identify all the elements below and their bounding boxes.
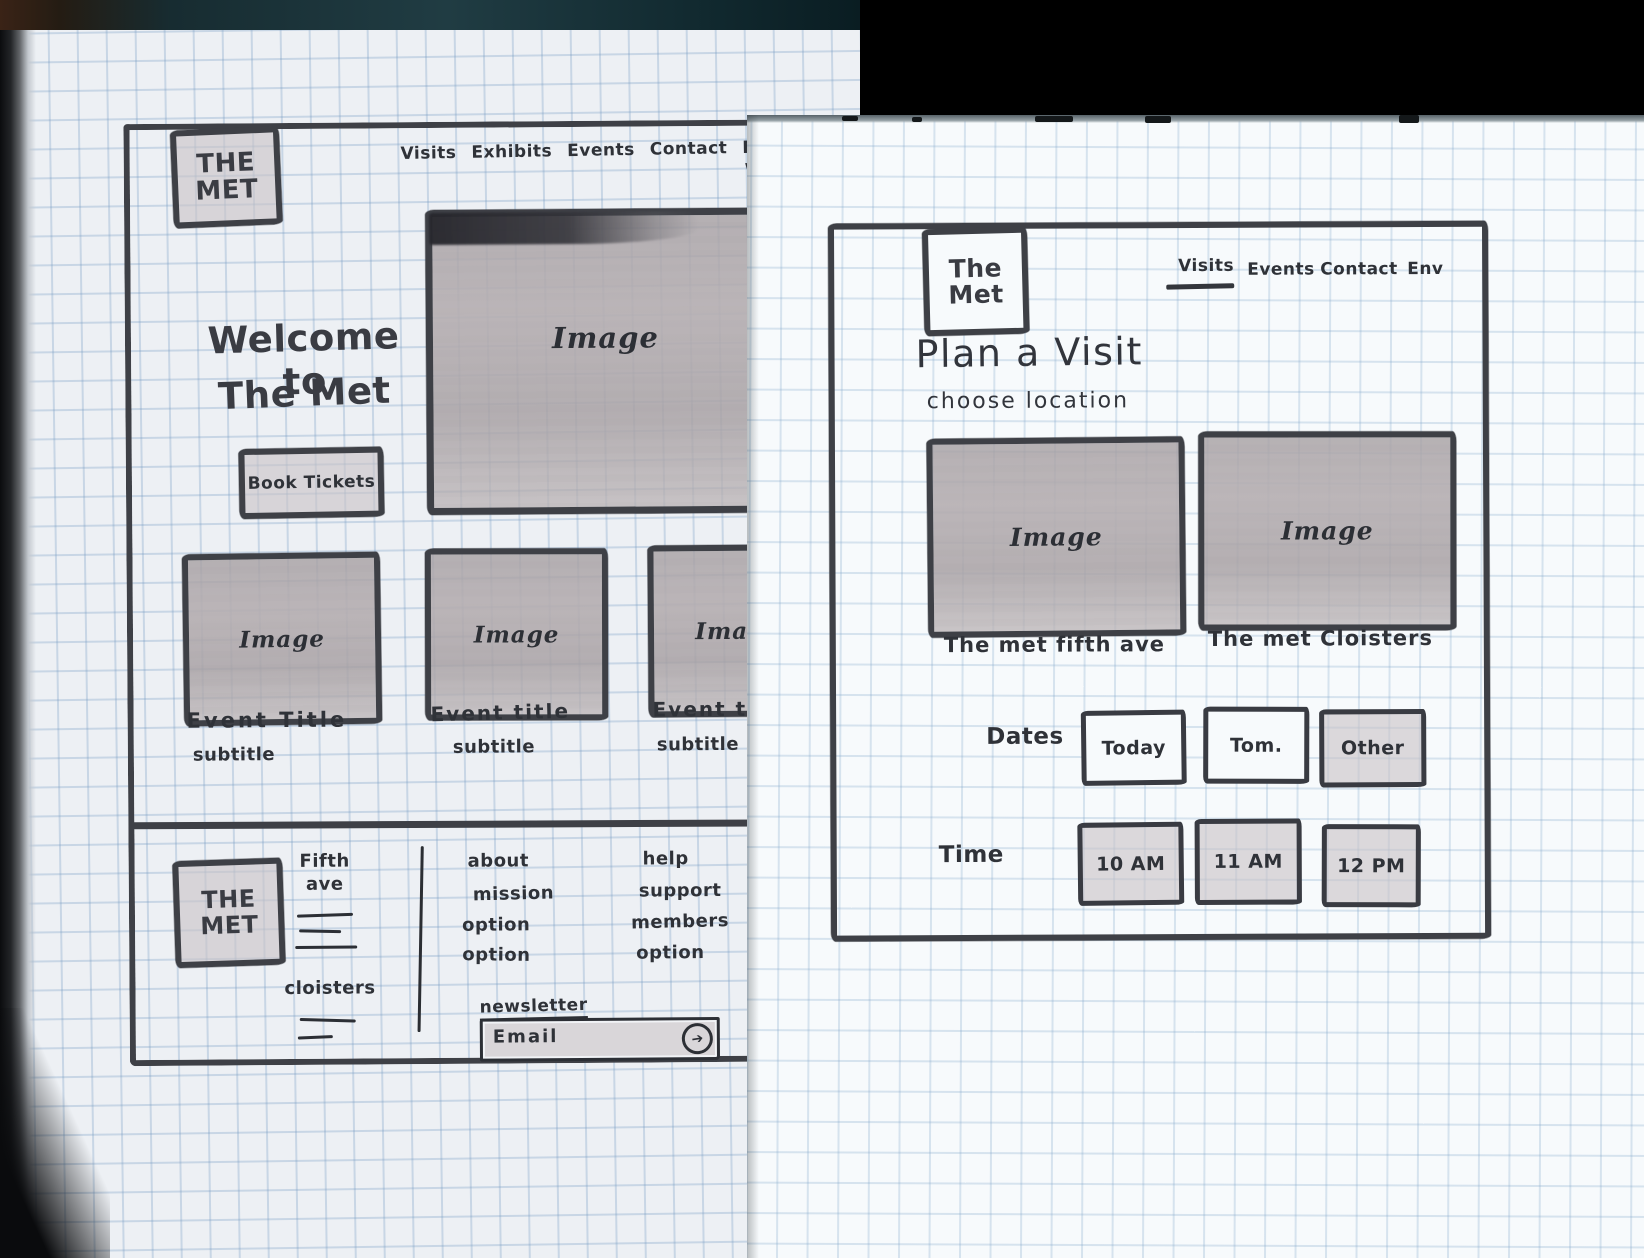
met-logo-box: The Met — [922, 227, 1030, 337]
met-logo-text: THE MET — [177, 149, 276, 206]
location-image-label: Image — [1281, 516, 1374, 545]
hero-image-label: Image — [433, 319, 778, 355]
newsletter-label: newsletter — [479, 995, 588, 1021]
nav-item-contact: Contact — [1320, 259, 1398, 279]
cut-letter-mark — [912, 117, 922, 122]
newsletter-email-input: Email ➔ — [480, 1017, 720, 1062]
date-option-today: Today — [1081, 710, 1187, 786]
home-nav: Visits Exhibits Events Contact En ∨ — [400, 138, 741, 184]
plan-visit-wireframe-sketch: The Met Visits Events Contact Env Plan a… — [747, 115, 1644, 1258]
notebook-corner-shadow — [0, 1008, 110, 1258]
time-label: Time — [939, 842, 1004, 868]
nav-item-events: Events — [567, 140, 635, 181]
book-tickets-label: Book Tickets — [247, 472, 375, 494]
location-caption-fifth-ave: The met fifth ave — [944, 632, 1165, 657]
desk-surface — [0, 0, 860, 30]
footer-met-logo-text: THE MET — [179, 886, 279, 940]
footer-link-members: members — [631, 910, 729, 933]
photo-black-background — [860, 0, 1644, 115]
event-card-title-1: Event Title — [187, 708, 348, 733]
footer-link-about: about — [468, 850, 529, 871]
left-notebook-page: THE MET Visits Exhibits Events Contact E… — [0, 0, 860, 1258]
cut-letter-mark — [1035, 116, 1073, 122]
ink-smudge — [429, 211, 698, 245]
event-card-subtitle-1: subtitle — [193, 744, 275, 766]
event-card-title-2: Event title — [430, 699, 570, 726]
footer-link-mission: mission — [473, 882, 555, 905]
event-card-image-1: Image — [182, 552, 382, 727]
location-image-label: Image — [1010, 522, 1103, 552]
nav-item-exhibits: Exhibits — [471, 141, 552, 182]
met-logo-text: The Met — [929, 255, 1023, 308]
hero-image-placeholder: Image — [425, 208, 786, 515]
plan-a-visit-title: Plan a Visit — [915, 329, 1143, 376]
event-card-subtitle-2: subtitle — [453, 736, 535, 758]
event-card-image-2: Image — [425, 548, 608, 720]
footer-link-option: option — [636, 942, 704, 963]
footer-link-help: help — [643, 848, 689, 869]
welcome-heading-line2: The Met — [192, 368, 417, 420]
date-option-tomorrow: Tom. — [1203, 707, 1309, 784]
nav-item-language-dropdown: Env — [1407, 259, 1443, 279]
footer-location-fifth-ave: Fifth ave — [288, 849, 362, 896]
nav-item-contact: Contact — [650, 138, 728, 179]
met-logo-box: THE MET — [170, 126, 283, 228]
notebook-photo: THE MET Visits Exhibits Events Contact E… — [0, 0, 1644, 1258]
time-option-12pm: 12 PM — [1322, 824, 1421, 907]
home-wireframe-sketch: THE MET Visits Exhibits Events Contact E… — [0, 0, 860, 1258]
location-caption-cloisters: The met Cloisters — [1208, 626, 1433, 651]
nav-item-visits: Visits — [400, 143, 457, 184]
right-notebook-page: The Met Visits Events Contact Env Plan a… — [747, 115, 1644, 1258]
page-overlap-seam — [747, 115, 759, 1258]
card-image-label: Image — [239, 625, 325, 653]
placeholder-line — [295, 946, 357, 949]
choose-location-subtitle: choose location — [927, 388, 1129, 414]
footer-location-cloisters: cloisters — [284, 977, 384, 999]
date-option-other: Other — [1319, 709, 1426, 787]
dates-label: Dates — [986, 724, 1064, 750]
cut-letter-mark — [1145, 116, 1171, 123]
card-image-label: Image — [474, 621, 560, 648]
footer-link-support: support — [639, 880, 722, 902]
page-top-edge — [747, 115, 1644, 123]
footer-link-option: option — [462, 914, 530, 935]
location-image-fifth-ave: Image — [926, 436, 1186, 637]
location-image-cloisters: Image — [1198, 431, 1456, 630]
cut-letter-mark — [842, 116, 858, 121]
footer-link-option: option — [462, 944, 530, 966]
email-placeholder-text: Email — [493, 1026, 559, 1047]
cut-letter-mark — [1399, 115, 1419, 123]
time-option-11am: 11 AM — [1195, 819, 1302, 905]
time-option-10am: 10 AM — [1077, 822, 1184, 906]
book-tickets-button: Book Tickets — [238, 447, 384, 520]
nav-item-visits-active: Visits — [1178, 256, 1234, 276]
footer-met-logo-box: THE MET — [172, 858, 285, 969]
nav-item-events: Events — [1247, 259, 1315, 279]
